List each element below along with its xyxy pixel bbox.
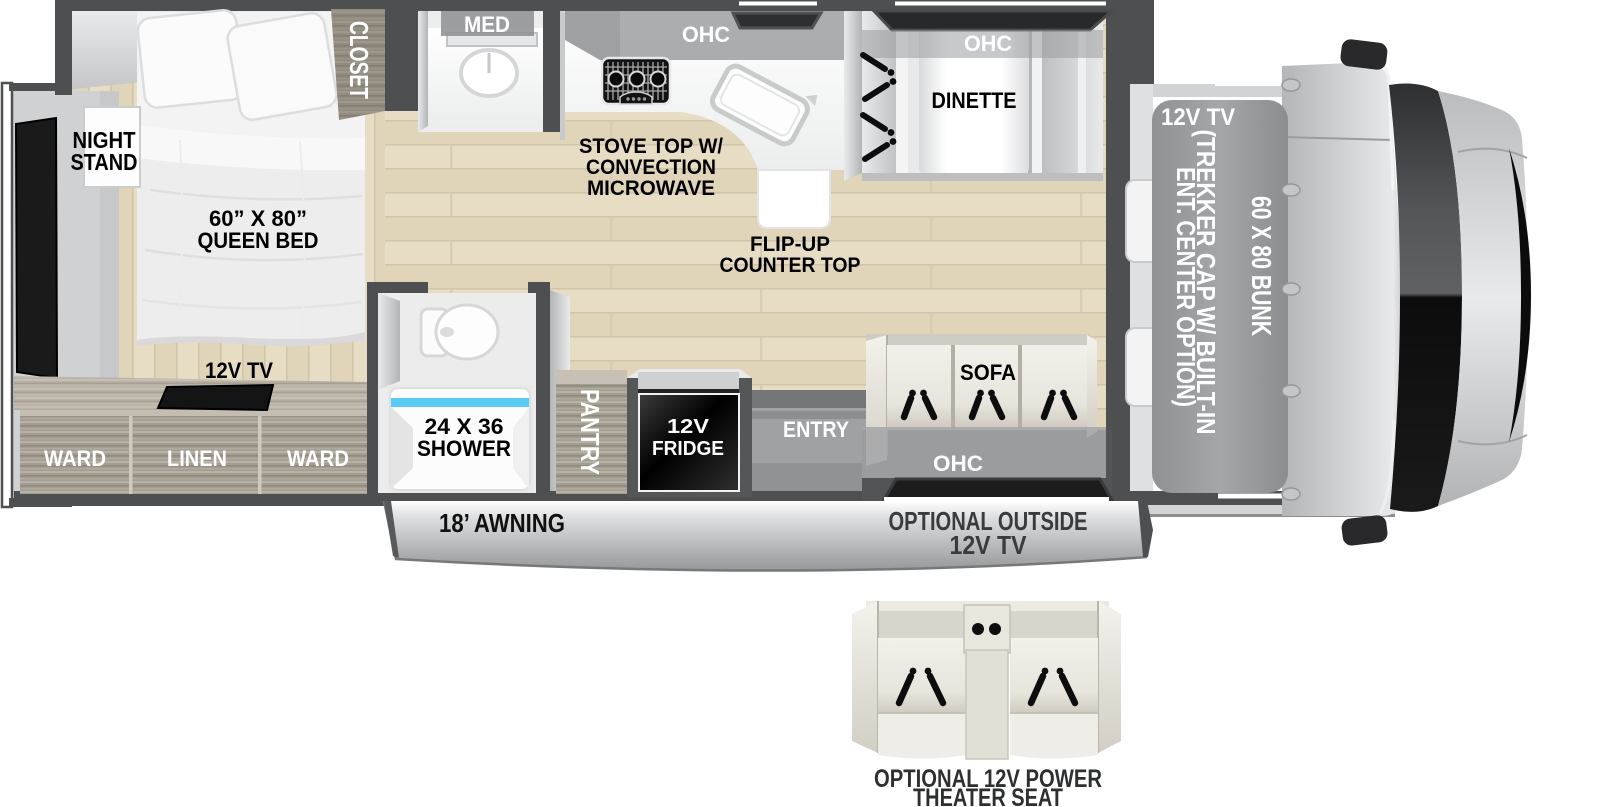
svg-text:12V TV: 12V TV [205, 358, 273, 383]
svg-text:FRIDGE: FRIDGE [652, 438, 724, 460]
svg-text:12V TV: 12V TV [950, 530, 1028, 560]
svg-text:QUEEN BED: QUEEN BED [198, 228, 319, 253]
svg-text:WARD: WARD [287, 446, 349, 471]
svg-text:OHC: OHC [682, 22, 730, 47]
svg-text:(TREKKER CAP W/ BUILT-IN: (TREKKER CAP W/ BUILT-IN [1191, 130, 1221, 435]
svg-text:WARD: WARD [44, 446, 106, 471]
svg-text:MED: MED [464, 12, 510, 37]
svg-text:PANTRY: PANTRY [575, 389, 605, 475]
svg-text:FLIP-UP: FLIP-UP [750, 233, 830, 256]
svg-text:ENTRY: ENTRY [783, 417, 849, 442]
svg-text:STAND: STAND [71, 149, 138, 175]
svg-text:CONVECTION: CONVECTION [586, 156, 716, 179]
svg-text:DINETTE: DINETTE [932, 88, 1017, 113]
svg-text:CLOSET: CLOSET [344, 21, 374, 99]
svg-text:SOFA: SOFA [960, 360, 1016, 385]
svg-text:SHOWER: SHOWER [417, 436, 511, 461]
svg-text:12V: 12V [667, 416, 710, 438]
svg-text:STOVE TOP W/: STOVE TOP W/ [579, 135, 723, 158]
svg-text:THEATER SEAT: THEATER SEAT [913, 784, 1063, 807]
svg-text:12V TV: 12V TV [1161, 104, 1235, 131]
svg-text:60 X 80 BUNK: 60 X 80 BUNK [1246, 196, 1277, 336]
svg-text:18’ AWNING: 18’ AWNING [439, 508, 565, 538]
svg-text:LINEN: LINEN [167, 446, 227, 471]
svg-text:OHC: OHC [964, 31, 1012, 56]
svg-text:COUNTER TOP: COUNTER TOP [720, 254, 861, 277]
svg-text:MICROWAVE: MICROWAVE [587, 177, 715, 200]
svg-text:OHC: OHC [933, 451, 983, 476]
